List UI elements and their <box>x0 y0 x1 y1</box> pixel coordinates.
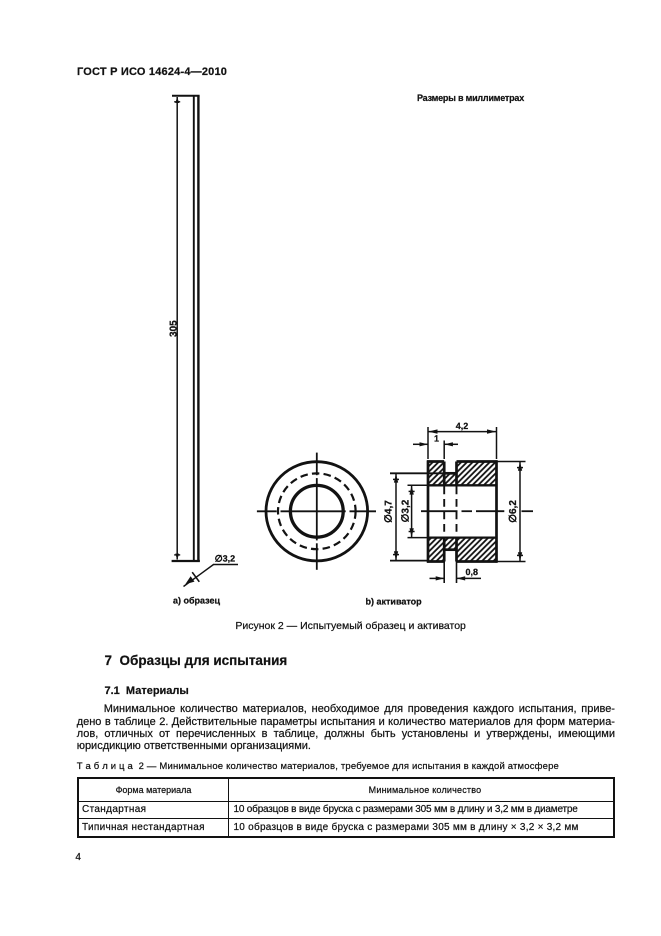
svg-text:1: 1 <box>434 434 439 444</box>
svg-text:∅6,2: ∅6,2 <box>508 500 519 523</box>
svg-text:∅3,2: ∅3,2 <box>215 553 235 563</box>
svg-text:305: 305 <box>168 320 179 337</box>
svg-text:а) образец: а) образец <box>173 595 221 605</box>
svg-text:4,2: 4,2 <box>456 421 469 431</box>
svg-text:∅3,2: ∅3,2 <box>400 499 411 522</box>
svg-text:0,8: 0,8 <box>466 567 479 577</box>
svg-text:b) активатор: b) активатор <box>366 596 423 606</box>
svg-text:∅4,7: ∅4,7 <box>384 500 395 523</box>
